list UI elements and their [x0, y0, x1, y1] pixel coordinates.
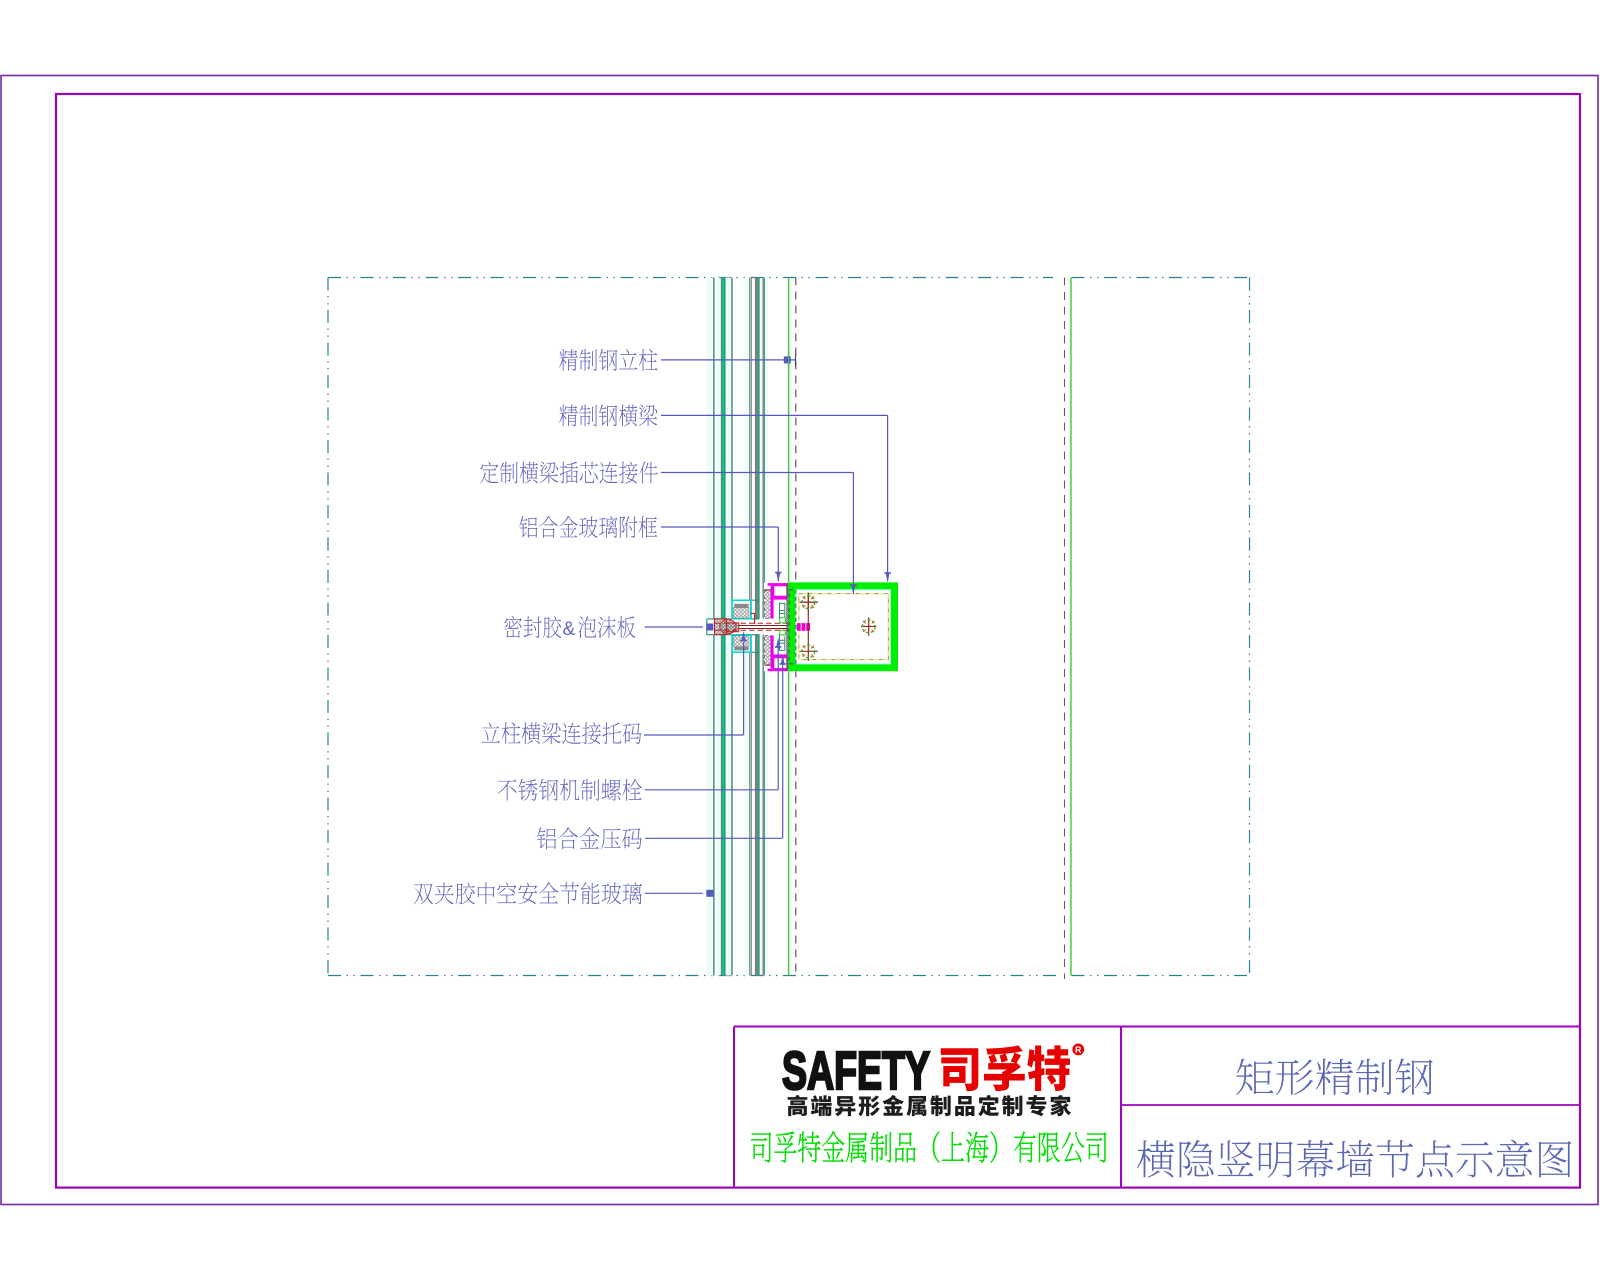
svg-text:&: &	[563, 619, 576, 640]
svg-text:SAFETY: SAFETY	[782, 1041, 930, 1101]
svg-text:R: R	[1075, 1045, 1082, 1055]
